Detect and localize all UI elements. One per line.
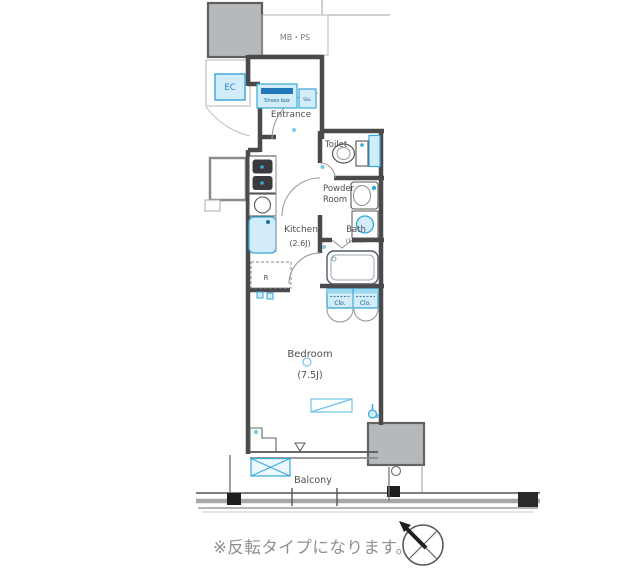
bath-fixtures xyxy=(322,245,378,284)
powder-room-label-line1: Powder xyxy=(323,184,355,194)
note-text: ※反転タイプになります。 xyxy=(213,538,413,557)
faucet-drop-icon xyxy=(369,410,377,418)
site-boundary-line xyxy=(322,0,390,15)
bathtub-icon xyxy=(327,251,378,284)
window-triangle-marker xyxy=(295,443,305,451)
entrance-label: Entrance xyxy=(271,110,312,120)
structural-gray-box-top xyxy=(208,3,262,57)
refrigerator-space xyxy=(251,262,291,288)
ec-label: EC xyxy=(224,83,235,93)
bedroom-label: Bedroom xyxy=(287,349,332,360)
sink-faucet-icon xyxy=(266,220,270,224)
switch-icon xyxy=(267,293,273,299)
toilet-knob-icon xyxy=(360,143,364,147)
wall-left-side xyxy=(248,55,260,454)
bedroom-door-arc xyxy=(289,253,320,284)
structural-box-left xyxy=(210,158,246,200)
powder-room-label-line2: Room xyxy=(323,195,347,205)
kitchen-label: Kitchen xyxy=(284,225,318,235)
entrance-floor-marker-icon xyxy=(292,128,296,132)
burner-mark-icon xyxy=(260,181,264,185)
floor-plan-page: MB・PS EC Shoes box Sto. Entrance Toilet … xyxy=(0,0,640,569)
toilet-cabinet xyxy=(369,136,380,167)
bath-size-label: (1216) xyxy=(346,239,364,245)
kitchen-sink-icon xyxy=(249,217,276,253)
storage-label: Sto. xyxy=(303,97,312,103)
switch-icon xyxy=(257,292,263,298)
burner-mark-icon xyxy=(260,165,264,169)
handle-mark-icon xyxy=(254,430,258,434)
drain-circle xyxy=(392,467,401,476)
bedroom-size-label: (7.5J) xyxy=(297,370,322,381)
bath-label: Bath xyxy=(346,225,366,235)
powder-door-arc xyxy=(282,178,320,216)
washbasin-faucet-icon xyxy=(372,186,376,190)
floor-plan-drawing: MB・PS EC Shoes box Sto. Entrance Toilet … xyxy=(0,0,640,569)
bath-handle-icon xyxy=(322,245,326,249)
kitchen-size-label: (2.6J) xyxy=(289,239,310,248)
closet-door-arcs xyxy=(327,309,378,322)
closet-left-label: Clo. xyxy=(334,300,345,307)
closet-right-label: Clo. xyxy=(360,300,371,307)
balcony-label: Balcony xyxy=(294,475,332,486)
refrigerator-label: R xyxy=(264,274,269,282)
structural-step-left xyxy=(205,200,220,211)
toilet-door-handle-icon xyxy=(321,165,325,169)
counter-bowl-icon xyxy=(255,197,271,213)
rail-end-block xyxy=(518,492,538,507)
shoes-box-mirror-bar xyxy=(261,88,293,94)
shoes-box-label: Shoes box xyxy=(264,98,290,104)
rail-tick-marks xyxy=(292,488,337,506)
entrance-fixtures xyxy=(257,84,316,132)
corridor-curve-line xyxy=(206,107,250,136)
rail-post-left xyxy=(227,493,241,505)
toilet-label: Toilet xyxy=(324,140,348,150)
mbps-label: MB・PS xyxy=(280,33,310,42)
shoes-box xyxy=(257,84,297,108)
